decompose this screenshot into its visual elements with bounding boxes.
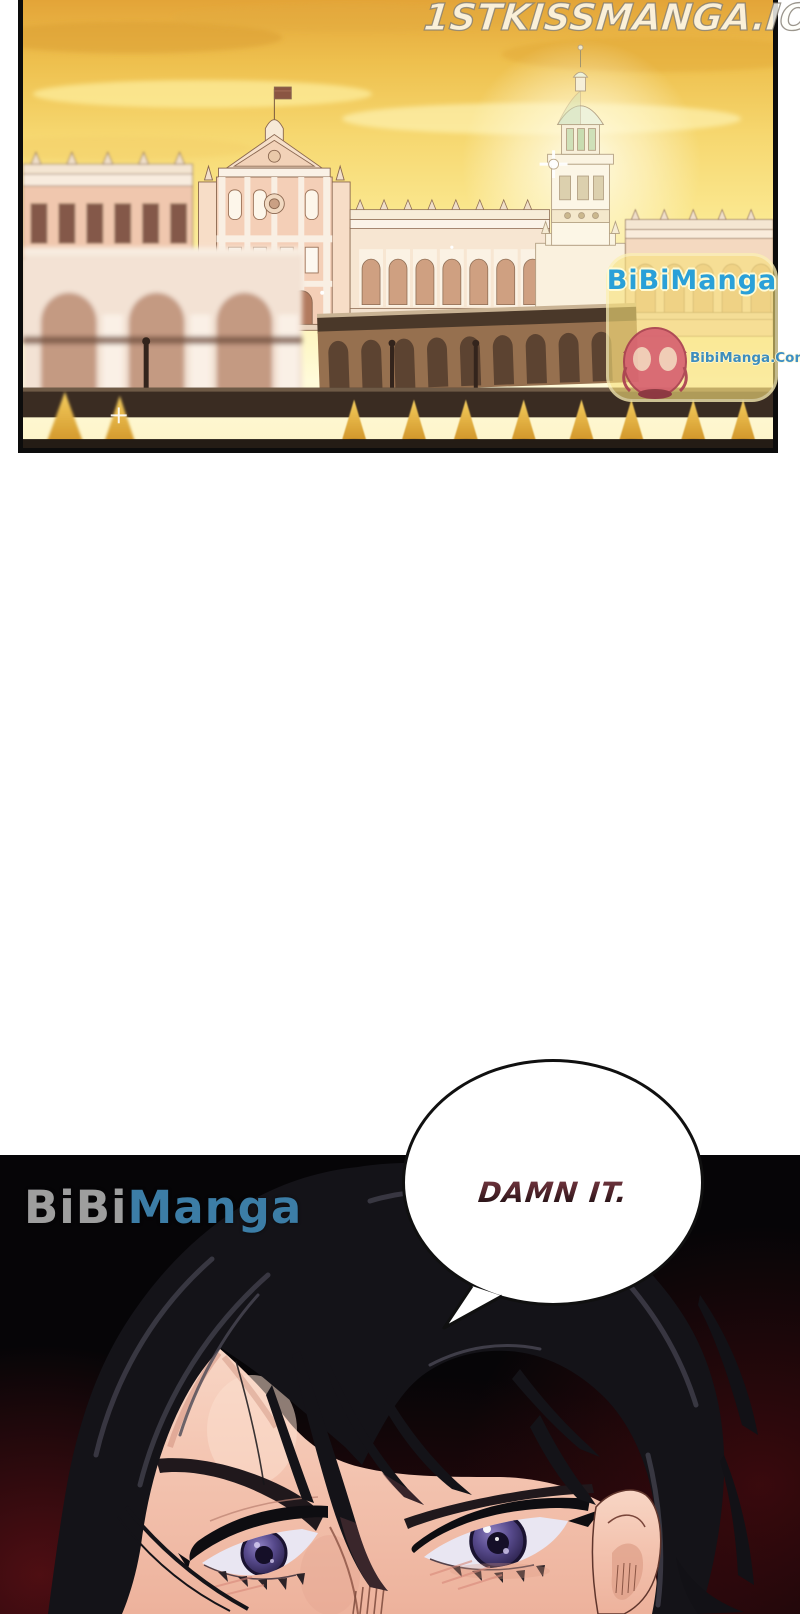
mascot-icon [610,307,700,399]
speech-bubble-tail [438,1282,513,1334]
watermark-part-bi: BiBi [24,1181,127,1234]
manga-page: 1STKISSMANGA.IO BiBiManga BibiManga.Com [0,0,800,1614]
watermark-part-manga: Manga [127,1181,302,1234]
flag-icon [274,87,291,99]
courtyard-arcade [23,247,302,393]
bibimanga-sticker: BiBiManga BibiManga.Com [606,253,778,402]
bibimanga-watermark: BiBiManga [24,1181,302,1234]
speech-bubble: DAMN IT. [402,1059,704,1306]
speech-text: DAMN IT. [403,1176,702,1209]
sticker-site-text: BibiManga.Com [690,350,800,366]
courtyard-colonnade [317,303,639,393]
site-watermark-text: 1STKISSMANGA.IO [422,0,800,39]
sticker-logo-text: BiBiManga [606,265,778,296]
